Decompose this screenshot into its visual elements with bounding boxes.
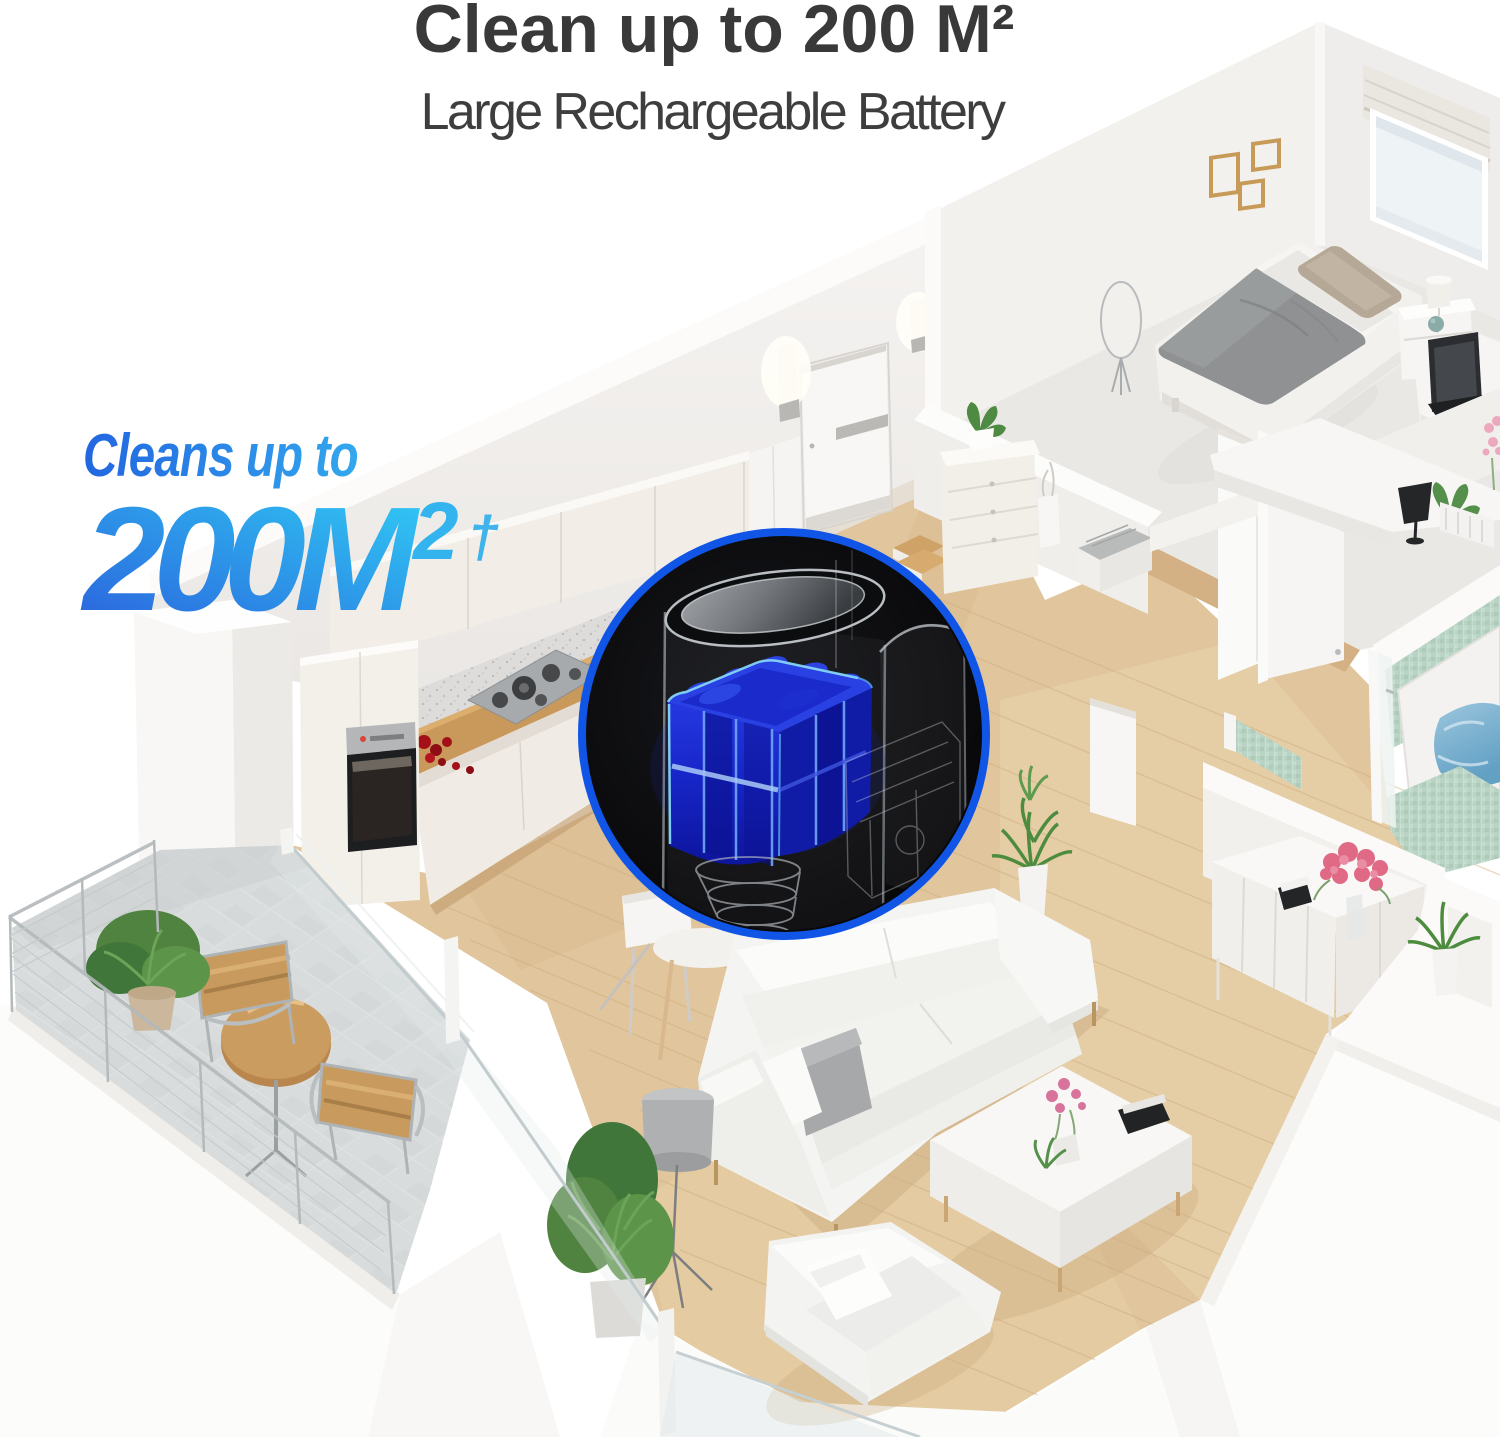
svg-text:Clean up to 200 M²: Clean up to 200 M² xyxy=(414,0,1015,67)
svg-text:Large Rechargeable Battery: Large Rechargeable Battery xyxy=(421,83,1006,141)
svg-text:2: 2 xyxy=(411,486,459,577)
svg-text:200M: 200M xyxy=(80,477,420,642)
svg-text:†: † xyxy=(467,505,499,570)
